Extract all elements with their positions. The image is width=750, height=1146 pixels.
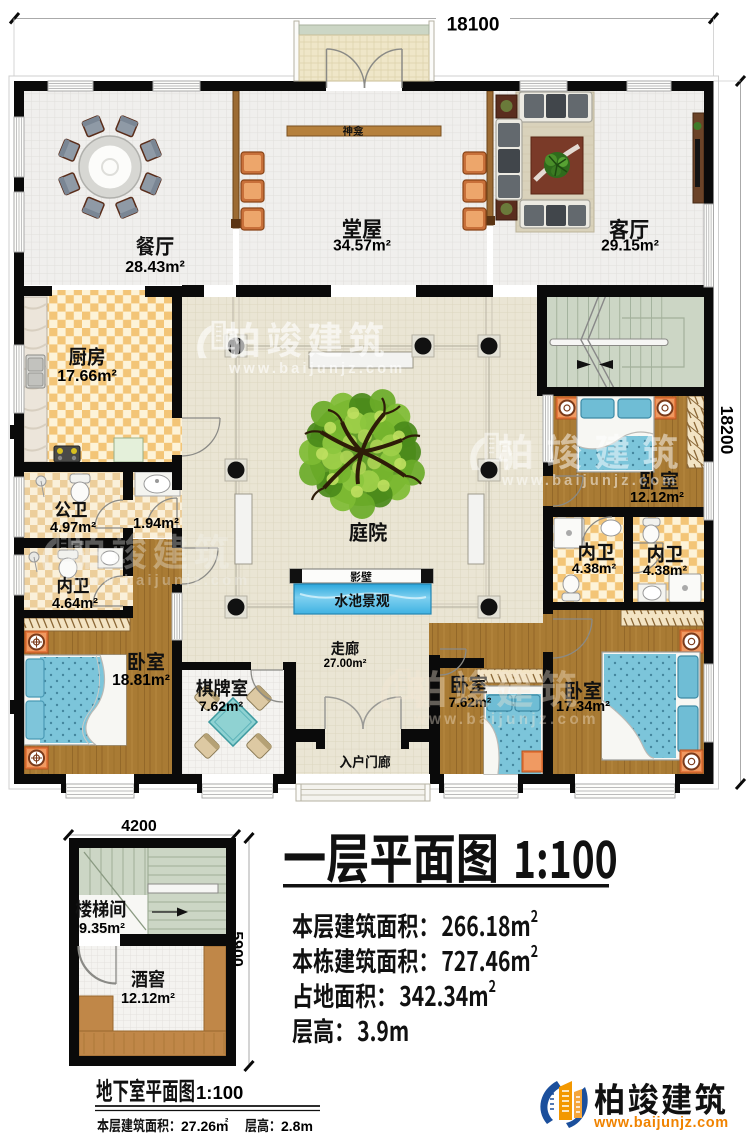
svg-text:7.62m²: 7.62m²	[199, 698, 244, 714]
svg-text:12.12m²: 12.12m²	[121, 991, 175, 1007]
svg-text:18200: 18200	[717, 406, 737, 455]
svg-text:4.38m²: 4.38m²	[572, 560, 617, 576]
svg-text:www.baijunjz.com: www.baijunjz.com	[501, 473, 678, 489]
svg-text:28.43m²: 28.43m²	[125, 259, 185, 276]
svg-text:18100: 18100	[447, 15, 500, 36]
svg-text:www.baijunjz.com: www.baijunjz.com	[228, 361, 405, 377]
svg-text:27.00m²: 27.00m²	[324, 658, 367, 670]
svg-text:www.baijunjz.com: www.baijunjz.com	[413, 711, 599, 728]
svg-text:27.26m: 27.26m	[181, 1118, 228, 1134]
svg-text:1:100: 1:100	[196, 1082, 243, 1103]
svg-text:www.baijunjz.com: www.baijunjz.com	[73, 573, 250, 589]
svg-text:4.64m²: 4.64m²	[52, 596, 98, 612]
svg-text:17.66m²: 17.66m²	[57, 368, 117, 385]
svg-text:www.baijunjz.com: www.baijunjz.com	[593, 1115, 729, 1131]
svg-text:29.15m²: 29.15m²	[601, 238, 659, 255]
svg-text:9.35m²: 9.35m²	[79, 921, 125, 937]
svg-text:12.12m²: 12.12m²	[630, 490, 684, 506]
svg-text:34.57m²: 34.57m²	[333, 238, 391, 255]
svg-text:4.38m²: 4.38m²	[643, 562, 688, 578]
svg-text:2.8m: 2.8m	[281, 1118, 313, 1134]
svg-text:1.94m²: 1.94m²	[133, 516, 179, 532]
svg-text:18.81m²: 18.81m²	[112, 672, 170, 689]
svg-text:4200: 4200	[121, 818, 157, 835]
